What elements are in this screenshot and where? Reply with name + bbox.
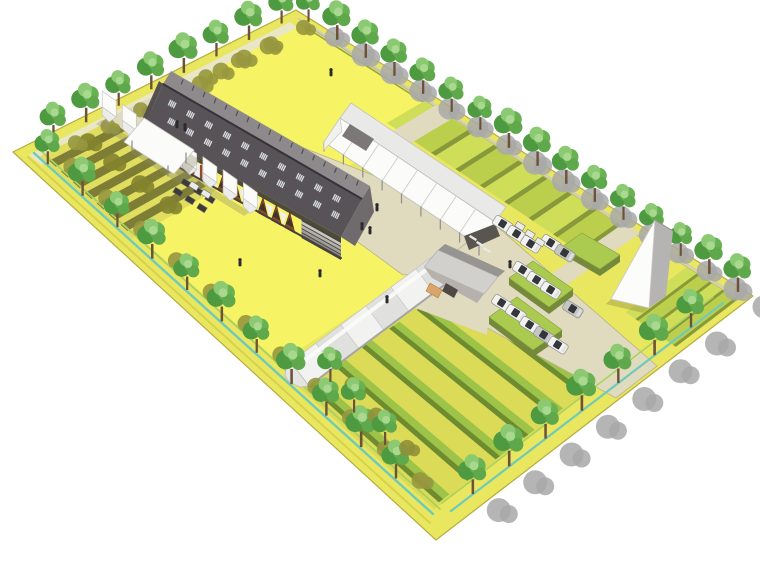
person-figure [318,269,321,277]
person-figure [385,295,388,303]
person-figure [368,226,371,234]
person-figure [183,123,186,131]
person-figure [360,222,363,230]
person-figure [238,258,241,266]
person-figure [175,120,178,128]
person-figure [508,260,511,268]
person-figure [375,203,378,211]
site-plan-svg [0,0,760,570]
person-figure [329,68,332,76]
farm-site-3d-rendering [0,0,760,570]
